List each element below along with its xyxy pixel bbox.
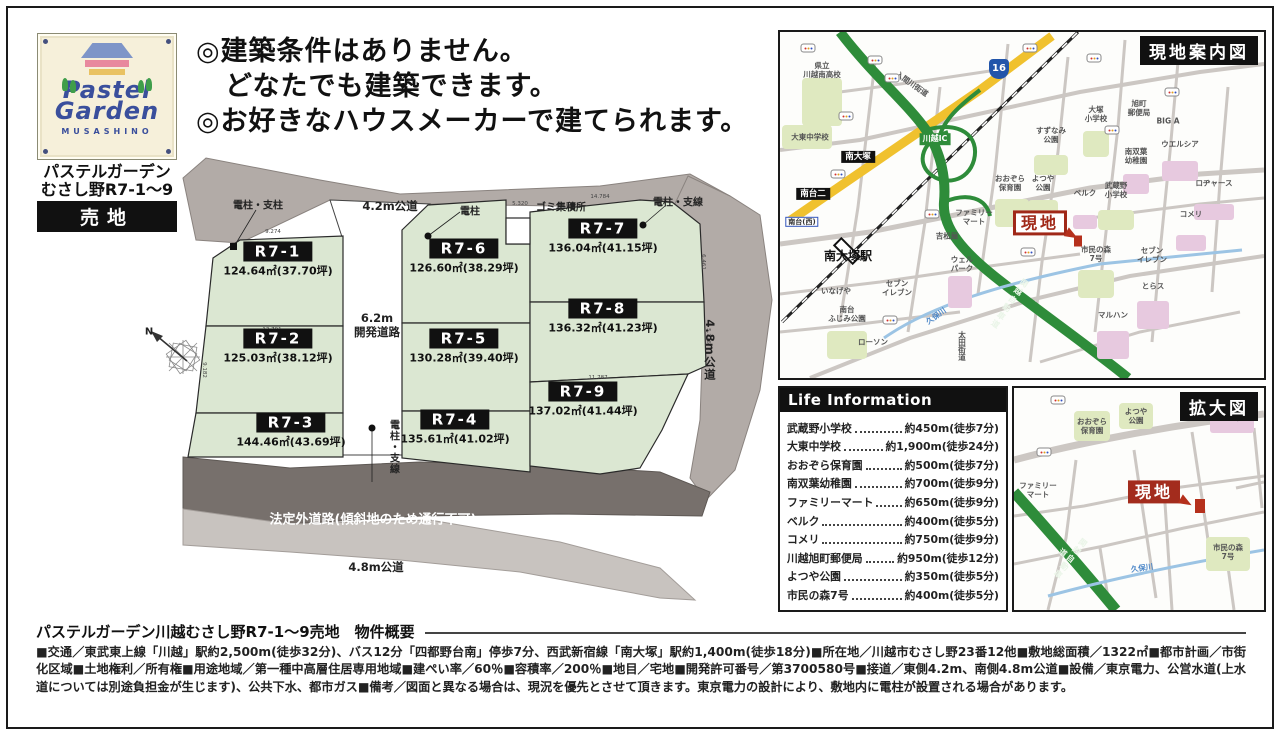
rogers-label: ロヂャース — [1195, 179, 1232, 188]
compass-north-label: N — [145, 327, 153, 338]
brand-subtitle: MUSASHINO — [61, 127, 152, 136]
leader-dots — [822, 542, 901, 544]
plot-label-r7-2: R7-2125.03㎡(38.12坪) — [223, 329, 332, 366]
life-info-value: 約950m(徒歩12分) — [897, 550, 999, 566]
store-area — [1097, 331, 1129, 359]
ozora-nursery-label: おおぞら 保育園 — [1077, 417, 1107, 435]
life-info-value: 約400m(徒歩5分) — [905, 587, 999, 603]
route16-shield: 16 — [989, 59, 1009, 79]
minamifutaba-kg-label: 南双葉 幼稚園 — [1125, 147, 1148, 165]
headline-line: どなたでも建築できます。 — [196, 69, 748, 104]
life-info-value: 約650m(徒歩9分) — [905, 494, 999, 510]
school-area — [1098, 210, 1134, 230]
forest-area — [1078, 270, 1114, 298]
store-area — [948, 276, 972, 308]
seven-eleven-label: セブン イレブン — [1137, 246, 1167, 264]
maruhan-label: マルハン — [1098, 311, 1128, 320]
dimension-label: 6.461 — [700, 254, 706, 270]
life-info-row: おおぞら保育園約500m(徒歩7分) — [787, 454, 999, 473]
tree-icon — [62, 78, 68, 91]
flyer-page: { "logo": { "brand_line1": "Pastel", "br… — [0, 0, 1280, 735]
fujimi-park-label: 南台 ふじみ公園 — [828, 305, 866, 323]
overview-title: パステルガーデン川越むさし野R7-1～9売地 物件概要 — [36, 621, 415, 642]
store-area — [1176, 235, 1206, 251]
dimension-label: 5.320 — [512, 201, 528, 207]
pastel-garden-logo: Pastel Garden MUSASHINO — [37, 33, 177, 160]
bus-stop-icon — [1021, 248, 1036, 257]
life-info-row: 市民の森7号約400m(徒歩5分) — [787, 584, 999, 603]
road-42m-label: 4.2m公道 — [362, 200, 417, 214]
plot-id: R7-8 — [569, 299, 638, 319]
plot-label-r7-4: R7-4135.61㎡(41.02坪) — [400, 410, 509, 447]
bus-stop-icon — [831, 170, 846, 179]
school-area — [1083, 131, 1109, 157]
yotsuya-park-label: よつや 公園 — [1125, 407, 1148, 425]
kawagoe-minami-hs-label: 県立 川越南高校 — [803, 61, 841, 79]
shimin-no-mori-label: 市民の森 7号 — [1213, 543, 1243, 561]
life-info-value: 約400m(徒歩5分) — [905, 513, 999, 529]
life-info-label: 大東中学校 — [787, 438, 841, 454]
store-area — [1137, 301, 1169, 329]
life-info-label: 川越旭町郵便局 — [787, 550, 863, 566]
plot-area: 135.61㎡(41.02坪) — [400, 431, 509, 447]
plot-area: 136.04㎡(41.15坪) — [548, 240, 657, 256]
life-info-row: 大東中学校約1,900m(徒歩24分) — [787, 436, 999, 455]
life-info-label: 武蔵野小学校 — [787, 420, 852, 436]
otsuka-es-label: 大塚 小学校 — [1085, 105, 1108, 123]
plot-area: 144.46㎡(43.69坪) — [236, 434, 345, 450]
bus-stop-icon — [1023, 44, 1038, 53]
dimension-label: 11.787 — [588, 375, 608, 381]
bus-stop-icon — [1037, 448, 1052, 457]
familymart-label: ファミリー マート — [1019, 481, 1057, 499]
inageya-label: いなげや — [821, 287, 851, 296]
site-marker: 現地 — [1013, 210, 1067, 235]
shimin-no-mori-label: 市民の森 7号 — [1081, 245, 1111, 263]
screw-icon — [166, 39, 171, 44]
dimension-label: 9.274 — [265, 229, 281, 235]
life-information-panel: Life Information 武蔵野小学校約450m(徒歩7分)大東中学校約… — [778, 386, 1008, 612]
dimension-label: 9.182 — [201, 362, 207, 378]
torasu-label: とらス — [1142, 282, 1165, 291]
suzunami-park-label: すずなみ 公園 — [1036, 126, 1066, 144]
life-info-value: 約350m(徒歩5分) — [905, 568, 999, 584]
plot-label-r7-8: R7-8136.32㎡(41.23坪) — [548, 299, 657, 336]
site-marker: 現地 — [1128, 480, 1180, 503]
leader-dots — [852, 598, 902, 600]
life-info-label: ファミリーマート — [787, 494, 873, 510]
non-statutory-road-label: 法定外道路(傾斜地のため通行不可) — [270, 509, 477, 528]
life-info-label: ベルク — [787, 513, 819, 529]
tree-icon — [138, 80, 144, 93]
garbage-station-label: ゴミ集積所 — [536, 199, 586, 214]
pole-label: 電柱・支柱 — [233, 197, 283, 212]
leader-dots — [866, 561, 895, 563]
house-icon — [81, 43, 133, 75]
plot-area: 125.03㎡(38.12坪) — [223, 350, 332, 366]
life-info-label: コメリ — [787, 531, 819, 547]
pole-label: 電柱 — [460, 203, 480, 218]
bus-stop-icon — [1051, 396, 1066, 405]
belc-label: ベルク — [1074, 189, 1097, 198]
compass-rose — [151, 331, 200, 374]
headline-line: ◎建築条件はありません。 — [196, 34, 748, 69]
life-info-row: よつや公園約350m(徒歩5分) — [787, 566, 999, 585]
life-info-label: おおぞら保育園 — [787, 457, 863, 473]
ota-kaido-label: 太田街道 — [958, 331, 967, 361]
site-spot — [1195, 499, 1205, 513]
pole-label: 電柱・支線 — [653, 194, 703, 209]
school-area — [802, 78, 842, 126]
life-info-row: 川越旭町郵便局約950m(徒歩12分) — [787, 547, 999, 566]
life-info-label: よつや公園 — [787, 568, 841, 584]
park-area — [1034, 155, 1068, 175]
asahicho-postoffice-label: 旭町 郵便局 — [1128, 99, 1151, 117]
leader-dots — [844, 579, 902, 581]
plot-label-r7-7: R7-7136.04㎡(41.15坪) — [548, 219, 657, 256]
leader-dots — [822, 524, 901, 526]
plot-area: 137.02㎡(41.44坪) — [528, 403, 637, 419]
yoshimatsuya-label: 吉松屋 — [936, 232, 959, 241]
guide-map-title: 現地案内図 — [1140, 36, 1258, 65]
bus-stop-icon — [1165, 88, 1180, 97]
minami-otsuka-station-label: 南大塚駅 — [824, 249, 872, 263]
pole-label: 電柱・支線 — [386, 420, 401, 475]
life-info-row: ファミリーマート約650m(徒歩9分) — [787, 491, 999, 510]
minamidai-west-label: 南台(西) — [785, 217, 818, 227]
leader-dots — [866, 468, 902, 470]
overview-body: ■交通／東武東上線「川越」駅約2,500m(徒歩32分)、バス12分「四都野台南… — [36, 644, 1246, 696]
daito-jhs-label: 大東中学校 — [791, 133, 829, 142]
plot-id: R7-9 — [549, 382, 618, 402]
road-48m-east-label: 4.8m公道 — [702, 319, 716, 380]
life-info-value: 約500m(徒歩7分) — [905, 457, 999, 473]
kawagoe-ic-label: 川越IC — [920, 133, 951, 145]
familymart-label: ファミリー マート — [955, 208, 993, 226]
bus-stop-icon — [868, 56, 883, 65]
life-information-title: Life Information — [780, 388, 1006, 412]
property-overview: パステルガーデン川越むさし野R7-1～9売地 物件概要 ■交通／東武東上線「川越… — [36, 621, 1246, 696]
plot-label-r7-3: R7-3144.46㎡(43.69坪) — [236, 413, 345, 450]
life-info-value: 約450m(徒歩7分) — [905, 420, 999, 436]
zoom-map-title: 拡大図 — [1180, 392, 1258, 421]
bus-stop-icon — [883, 316, 898, 325]
road-48m-south-label: 4.8m公道 — [348, 561, 403, 575]
life-info-label: 南双葉幼稚園 — [787, 475, 852, 491]
plot-label-r7-5: R7-5130.28㎡(39.40坪) — [409, 329, 518, 366]
dimension-label: 14.784 — [590, 194, 610, 200]
life-info-value: 約700m(徒歩9分) — [905, 475, 999, 491]
leader-dots — [855, 486, 902, 488]
minami-otsuka-label: 南大塚 — [841, 151, 875, 163]
bus-stop-icon — [885, 74, 900, 83]
guide-map-panel: 県立 川越南高校大東中学校入間川街道川越IC16大塚 小学校旭町 郵便局BIG … — [778, 30, 1266, 380]
plot-area: 124.64㎡(37.70坪) — [223, 263, 332, 279]
store-area — [1073, 215, 1097, 229]
headline-line: ◎お好きなハウスメーカーで建てられます。 — [196, 104, 748, 139]
yotsuya-park-label: よつや 公園 — [1032, 174, 1055, 192]
ozora-nursery-label: おおぞら 保育園 — [995, 174, 1025, 192]
plot-id: R7-4 — [421, 410, 490, 430]
leader-dots — [855, 431, 902, 433]
life-info-row: コメリ約750m(徒歩9分) — [787, 529, 999, 548]
komeri-label: コメリ — [1180, 210, 1203, 219]
dev-road-label: 6.2m 開発道路 — [354, 312, 400, 340]
life-info-row: ベルク約400m(徒歩5分) — [787, 510, 999, 529]
life-information-rows: 武蔵野小学校約450m(徒歩7分)大東中学校約1,900m(徒歩24分)おおぞら… — [780, 412, 1006, 603]
tree-icon — [146, 78, 152, 91]
life-info-value: 約750m(徒歩9分) — [905, 531, 999, 547]
tree-icon — [70, 80, 76, 93]
bus-stop-icon — [925, 210, 940, 219]
minamidai-2-label: 南台二 — [796, 188, 830, 200]
plot-area: 126.60㎡(38.29坪) — [409, 260, 518, 276]
bus-stop-icon — [801, 44, 816, 53]
life-info-row: 武蔵野小学校約450m(徒歩7分) — [787, 417, 999, 436]
plot-id: R7-1 — [244, 242, 313, 262]
overview-divider — [425, 632, 1246, 634]
bus-stop-icon — [839, 112, 854, 121]
seven-eleven-label: セブン イレブン — [882, 279, 912, 297]
zoom-map-panel: おおぞら 保育園よつや 公園ベルクファミリー マート現地市民の森 7号久保川関越… — [1012, 386, 1266, 612]
plot-id: R7-2 — [244, 329, 313, 349]
bus-stop-icon — [1105, 126, 1120, 135]
welpark-label: ウェル パーク — [951, 255, 974, 273]
big-a-label: BIG A — [1156, 117, 1179, 126]
plot-area: 130.28㎡(39.40坪) — [409, 350, 518, 366]
plot-label-r7-9: R7-9137.02㎡(41.44坪) — [528, 382, 637, 419]
musashino-es-label: 武蔵野 小学校 — [1105, 181, 1128, 199]
plot-id: R7-3 — [257, 413, 326, 433]
plot-area: 136.32㎡(41.23坪) — [548, 320, 657, 336]
life-info-row: 南双葉幼稚園約700m(徒歩9分) — [787, 473, 999, 492]
welcia-label: ウエルシア — [1161, 140, 1199, 149]
screw-icon — [43, 39, 48, 44]
leader-dots — [876, 505, 901, 507]
headline: ◎建築条件はありません。どなたでも建築できます。◎お好きなハウスメーカーで建てら… — [196, 34, 748, 139]
site-plan-drawing: 9.27413.7919.18213.06612.44413.74811.787… — [135, 148, 775, 630]
plot-id: R7-5 — [430, 329, 499, 349]
screw-icon — [43, 149, 48, 154]
bus-stop-icon — [1087, 54, 1102, 63]
plot-label-r7-6: R7-6126.60㎡(38.29坪) — [409, 239, 518, 276]
life-info-label: 市民の森7号 — [787, 587, 849, 603]
life-info-value: 約1,900m(徒歩24分) — [886, 438, 999, 454]
plot-label-r7-1: R7-1124.64㎡(37.70坪) — [223, 242, 332, 279]
plot-id: R7-6 — [430, 239, 499, 259]
brand-name-line2: Garden — [55, 99, 159, 123]
leader-dots — [844, 449, 883, 451]
lawson-label: ローソン — [858, 338, 888, 347]
store-area — [1162, 161, 1198, 181]
plot-id: R7-7 — [569, 219, 638, 239]
